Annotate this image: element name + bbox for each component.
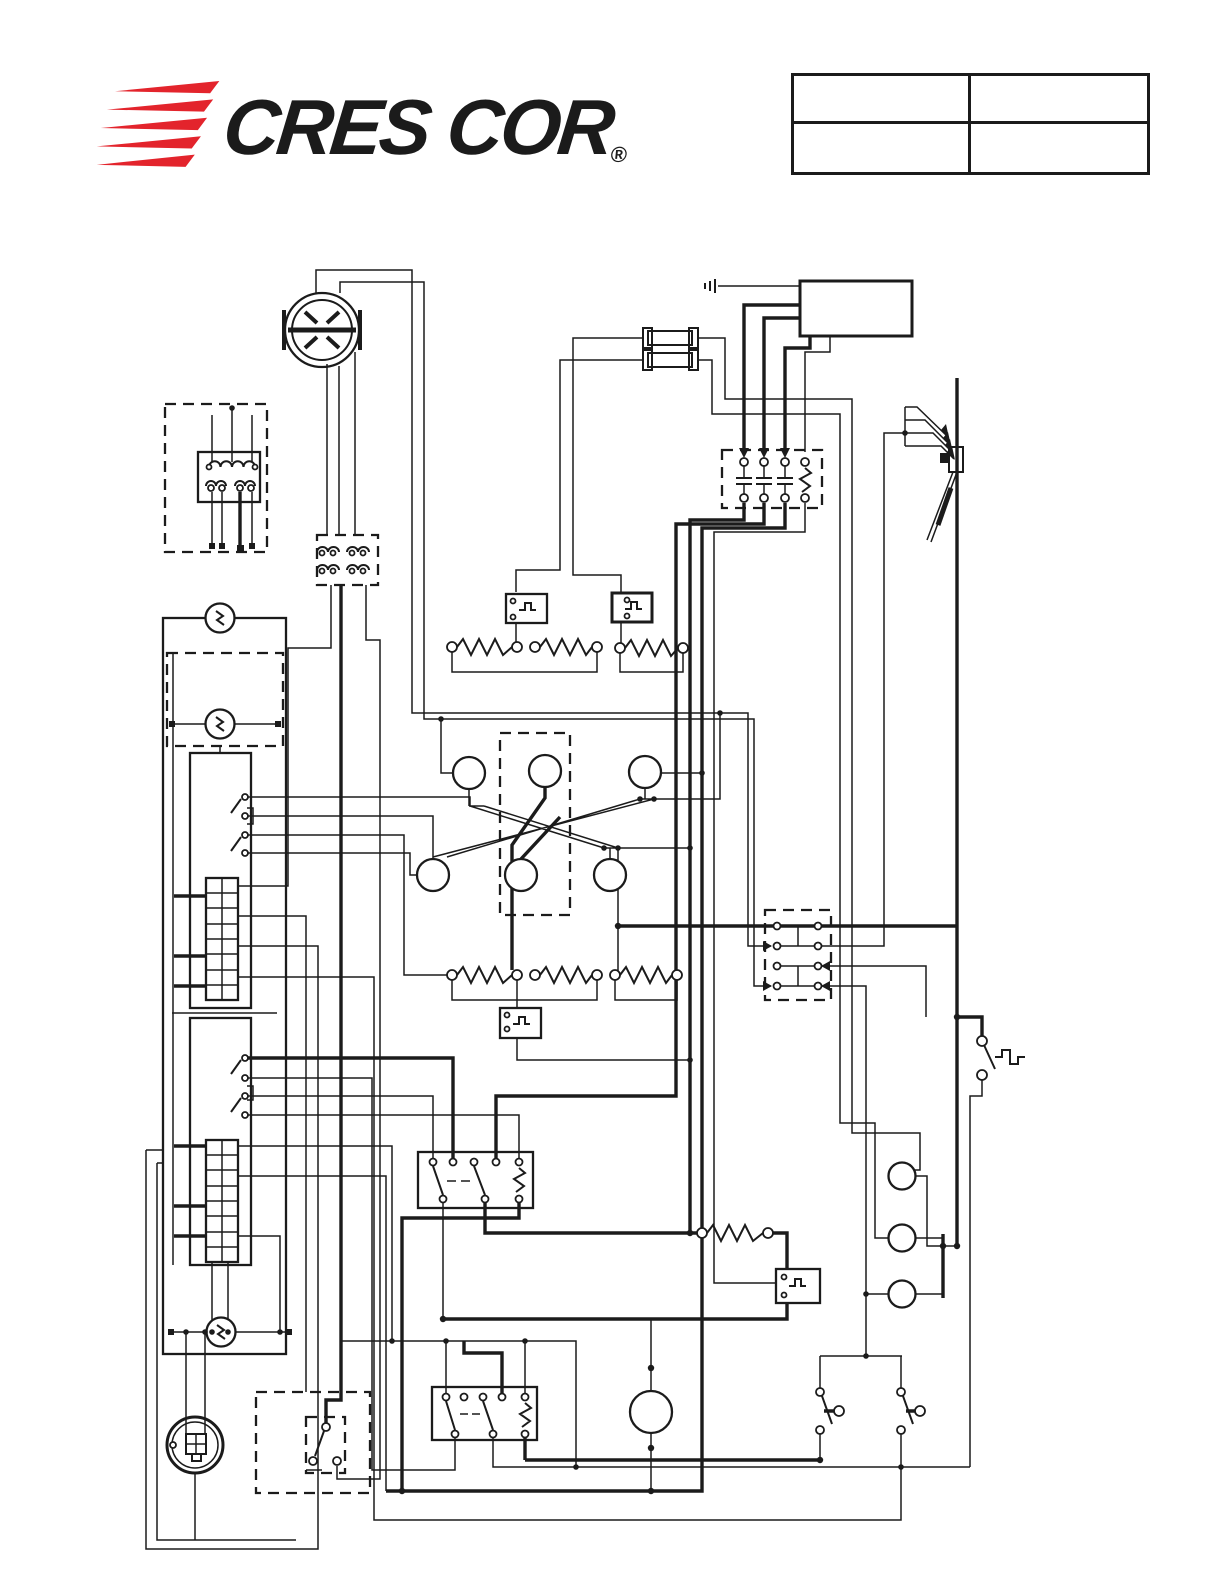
plug-connector-block: [317, 535, 378, 585]
heating-element-terminals: [447, 642, 688, 980]
fuse-1: [643, 328, 698, 348]
receptacle: [167, 1417, 223, 1473]
power-cord-assembly: [938, 447, 963, 525]
terminal-block-2: [206, 1140, 238, 1262]
wiring-diagram: [0, 0, 1224, 1584]
master-switch: [256, 1392, 370, 1493]
indicator-light-2: [889, 1225, 916, 1252]
document-page: CRES COR®: [0, 0, 1224, 1584]
indicator-light-1: [889, 1163, 916, 1190]
thermostat-4: [776, 1269, 820, 1303]
fuse-2: [643, 350, 698, 370]
wire-runs-thin: [146, 270, 982, 1549]
thermostat-1: [506, 594, 547, 623]
wire-runs-thick: [174, 305, 982, 1491]
main-contactor: [722, 450, 822, 508]
heating-element-zigzags: [457, 639, 763, 1241]
control-board: [800, 281, 912, 336]
indicator-light-3: [889, 1281, 916, 1308]
limit-switch: [977, 1036, 987, 1080]
relay-switch-block-2: [190, 1018, 251, 1265]
motor: [630, 1391, 672, 1433]
terminal-block-1: [206, 878, 238, 1000]
thermostat-3: [500, 1008, 541, 1038]
twist-lock-connector: [284, 293, 360, 367]
